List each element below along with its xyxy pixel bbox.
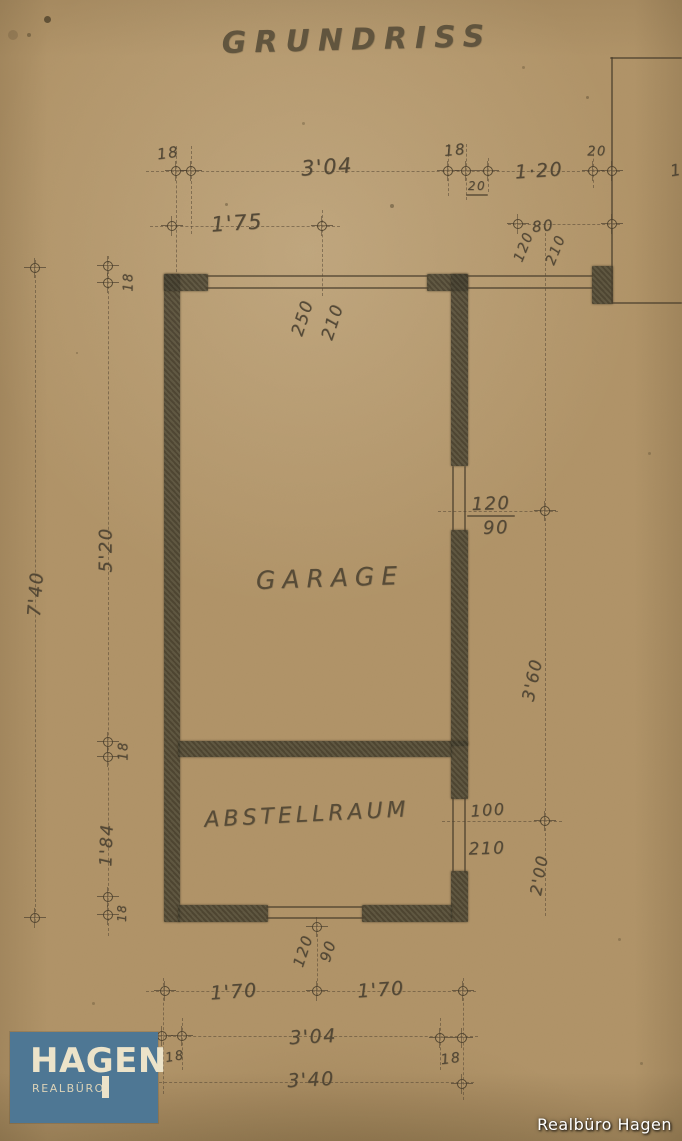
dimension-label: 3'04 xyxy=(300,153,353,181)
wall-segment xyxy=(451,741,468,799)
dimension-label: 2'00 xyxy=(526,853,552,897)
dimension-label: 18 xyxy=(117,741,132,761)
paper-speck xyxy=(358,744,360,746)
dimension-label: 210 xyxy=(318,301,348,342)
dimension-label: 3'04 xyxy=(289,1025,338,1049)
dimension-line xyxy=(176,146,177,282)
dimension-line xyxy=(545,228,546,916)
dimension-label: 1·20 xyxy=(514,158,564,183)
paper-speck xyxy=(618,938,621,941)
pencil-line xyxy=(452,797,454,873)
dimension-label: 210 xyxy=(543,233,570,268)
dimension-label: 90 xyxy=(483,517,510,539)
dimension-label: 18 xyxy=(443,140,467,160)
logo-subtitle: REALBÜRO xyxy=(32,1083,105,1094)
logo-wordmark: HAGEN xyxy=(30,1044,167,1078)
room-label: GARAGE xyxy=(255,561,404,595)
dimension-label: 120 xyxy=(289,932,316,969)
logo-g-descender-icon xyxy=(102,1076,109,1098)
pencil-line xyxy=(611,57,613,304)
dimension-label: 7'40 xyxy=(24,571,48,618)
dimension-label: 1'70 xyxy=(210,979,259,1004)
paper-speck xyxy=(27,33,31,37)
dimension-line xyxy=(322,210,323,296)
paper-speck xyxy=(302,122,305,125)
dimension-label: 100 xyxy=(470,799,506,820)
dimension-line xyxy=(317,924,318,996)
wall-segment xyxy=(178,741,452,757)
pencil-line xyxy=(266,917,364,919)
pencil-line xyxy=(452,466,454,532)
paper-speck xyxy=(8,30,18,40)
room-label: ABSTELLRAUM xyxy=(204,797,410,833)
dimension-label: 120 xyxy=(511,230,538,265)
dimension-label: 1 xyxy=(669,160,682,181)
dimension-line xyxy=(508,224,620,225)
dimension-line xyxy=(146,991,476,992)
dimension-label: 3'40 xyxy=(287,1068,336,1092)
pencil-line xyxy=(464,797,466,873)
paper-speck xyxy=(522,66,525,69)
wall-segment xyxy=(451,871,468,922)
wall-segment xyxy=(592,266,613,304)
wall-segment xyxy=(451,530,468,746)
paper-speck xyxy=(648,452,651,455)
pencil-line xyxy=(467,287,593,289)
dimension-label: 5'20 xyxy=(96,527,117,572)
pencil-line xyxy=(467,275,593,277)
wall-segment xyxy=(178,905,268,922)
paper-speck xyxy=(640,1062,643,1065)
hagen-logo: HAGEN REALBÜRO xyxy=(10,1032,158,1123)
dimension-line xyxy=(442,821,562,822)
paper-speck xyxy=(225,203,228,206)
wall-segment xyxy=(164,274,208,291)
paper-speck xyxy=(44,16,51,23)
wall-segment xyxy=(451,274,468,466)
drawing-title: GRUNDRISS xyxy=(221,19,492,61)
pencil-line xyxy=(612,302,682,304)
floorplan-page: GRUNDRISS 183'041'7518201·20208012021018… xyxy=(0,0,682,1141)
pencil-line xyxy=(266,906,364,908)
dimension-label: 18 xyxy=(156,143,180,164)
dimension-line xyxy=(488,158,489,192)
pencil-line xyxy=(610,57,682,59)
wall-segment xyxy=(164,274,180,922)
dimension-line xyxy=(191,146,192,234)
dimension-label: 18 xyxy=(440,1050,463,1069)
pencil-line xyxy=(464,466,466,532)
pencil-line xyxy=(206,275,429,277)
watermark-credit: Realbüro Hagen xyxy=(537,1115,672,1134)
paper-speck xyxy=(390,204,394,208)
dimension-label: 18 xyxy=(122,272,137,292)
pencil-line xyxy=(206,287,429,289)
dimension-label: 250 xyxy=(288,297,318,338)
dimension-line xyxy=(463,978,464,1100)
paper-speck xyxy=(92,1002,95,1005)
wall-segment xyxy=(362,905,452,922)
dimension-label: 20 xyxy=(587,145,607,160)
dimension-label: 210 xyxy=(468,838,506,859)
paper-speck xyxy=(76,352,78,354)
dimension-label: 1'70 xyxy=(357,977,406,1002)
pencil-line xyxy=(466,194,488,196)
dimension-label: 1'84 xyxy=(96,823,117,867)
dimension-label: 3'60 xyxy=(519,657,548,703)
dimension-label: 90 xyxy=(316,938,340,965)
dimension-tick xyxy=(451,1073,473,1095)
dimension-label: 18 xyxy=(115,904,129,922)
dimension-tick xyxy=(451,1027,473,1049)
dimension-label: 20 xyxy=(468,179,486,193)
paper-speck xyxy=(586,96,589,99)
dimension-label: 120 xyxy=(471,493,511,515)
dimension-label: 80 xyxy=(531,216,555,236)
dimension-label: 1'75 xyxy=(210,209,263,237)
floorplan-drawing: 183'041'7518201·202080120210182502101209… xyxy=(0,0,682,1141)
